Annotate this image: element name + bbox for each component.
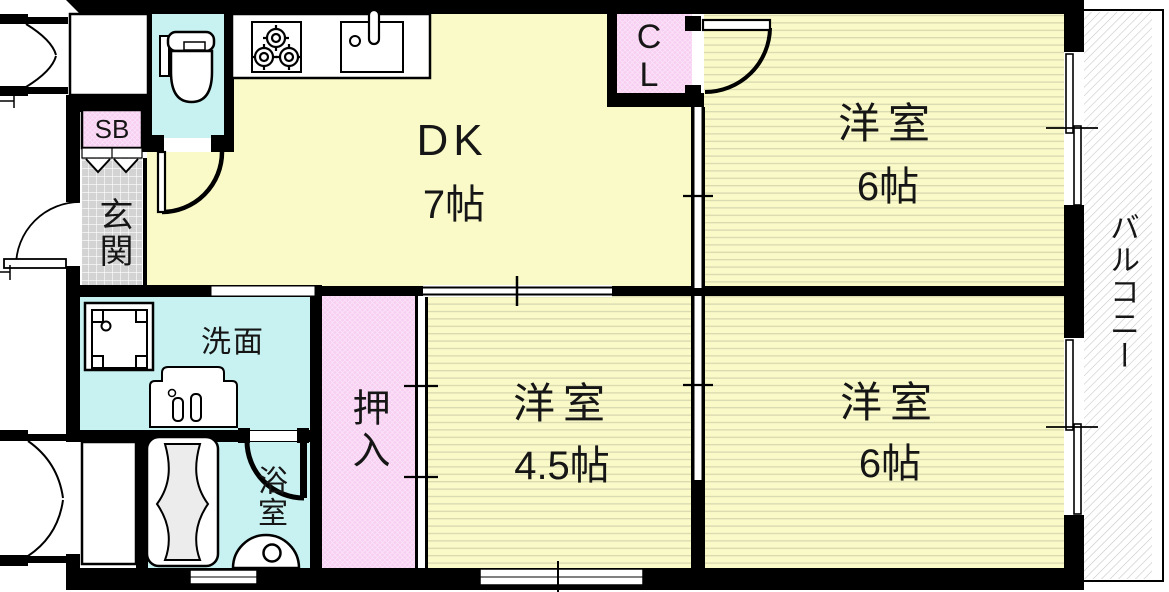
exterior-line-upper [0,94,14,108]
room-size-bedroom-bottom-center: 4.5帖 [514,446,610,486]
room-label-storage: 押入 [348,388,386,472]
floor-plan: DK 7帖 洋室 6帖 洋室 4.5帖 洋室 6帖 バルコニー CL SB 玄関… [0,0,1169,592]
vanity-sink-icon [150,367,237,427]
room-bedroom-top-right [704,14,1064,288]
room-label-dk: DK [416,119,487,163]
room-size-dk: 7帖 [423,185,485,225]
room-label-shoe-box: SB [95,116,130,142]
room-label-balcony: バルコニー [1106,212,1136,372]
stove-icon [251,22,302,72]
room-label-washroom: 洗面 [201,328,265,358]
wall-closet-left [607,14,617,102]
entrance-step-line [143,158,147,285]
entrance-door [4,202,80,268]
bathtub-icon [147,437,218,566]
meter-box-bottom [0,430,136,566]
room-bedroom-bottom-center [428,296,691,568]
room-label-entrance: 玄関 [96,197,130,269]
kitchen-counter [232,10,430,78]
room-size-bedroom-top-right: 6帖 [857,167,919,207]
bathroom-window [190,570,257,584]
room-label-bedroom-bottom-right: 洋室 [840,382,940,424]
washing-machine-icon [85,303,153,370]
floor-plan-drawing [0,0,1169,592]
room-bedroom-bottom-right [704,296,1064,568]
room-label-bedroom-bottom-center: 洋室 [513,383,613,425]
wall-top [66,0,1084,14]
meter-box-top [0,14,148,96]
wall-partition-lower [691,480,705,568]
room-label-bedroom-top-right: 洋室 [838,103,938,145]
room-size-bedroom-bottom-right: 6帖 [859,444,921,484]
room-label-closet: CL [632,18,666,94]
washroom-doorway [211,286,315,296]
room-label-bathroom: 浴室 [254,465,284,529]
